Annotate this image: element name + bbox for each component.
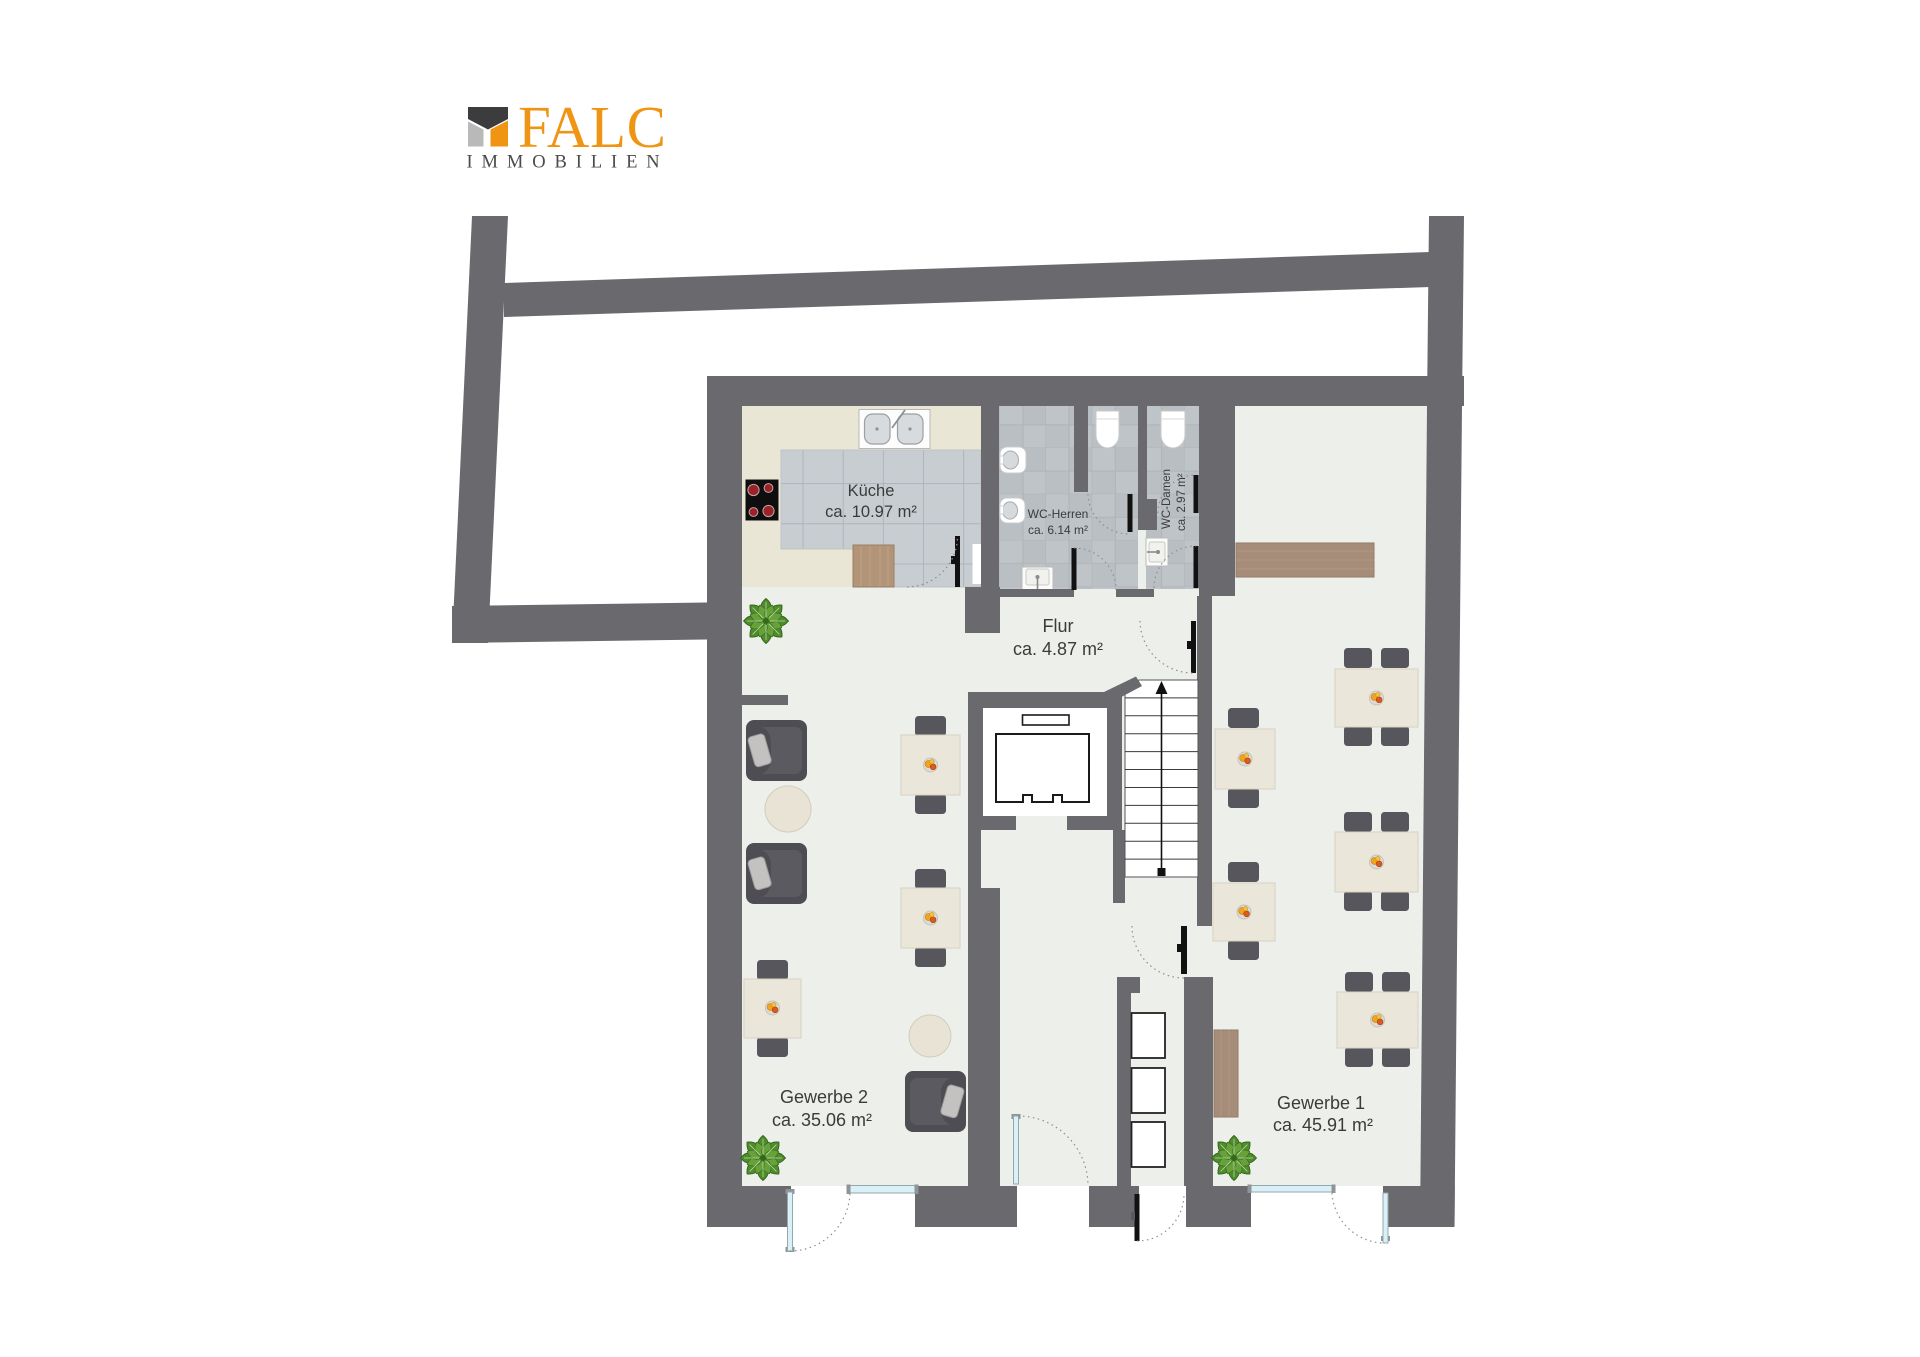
svg-text:Gewerbe 2: Gewerbe 2	[780, 1087, 868, 1107]
svg-text:Küche: Küche	[848, 482, 895, 500]
svg-text:Flur: Flur	[1043, 616, 1074, 636]
svg-text:ca. 10.97 m²: ca. 10.97 m²	[825, 503, 917, 521]
svg-text:ca. 4.87 m²: ca. 4.87 m²	[1013, 639, 1103, 659]
svg-text:WC-Herren: WC-Herren	[1028, 507, 1089, 521]
svg-text:FALC: FALC	[518, 94, 666, 160]
svg-text:ca. 2.97 m²: ca. 2.97 m²	[1176, 473, 1188, 531]
svg-text:Gewerbe 1: Gewerbe 1	[1277, 1093, 1365, 1113]
svg-text:ca. 6.14 m²: ca. 6.14 m²	[1028, 523, 1088, 537]
svg-text:ca. 35.06 m²: ca. 35.06 m²	[772, 1110, 872, 1130]
svg-text:IMMOBILIEN: IMMOBILIEN	[467, 153, 669, 173]
svg-text:ca. 45.91 m²: ca. 45.91 m²	[1273, 1115, 1373, 1135]
svg-text:WC-Damen: WC-Damen	[1161, 469, 1173, 529]
